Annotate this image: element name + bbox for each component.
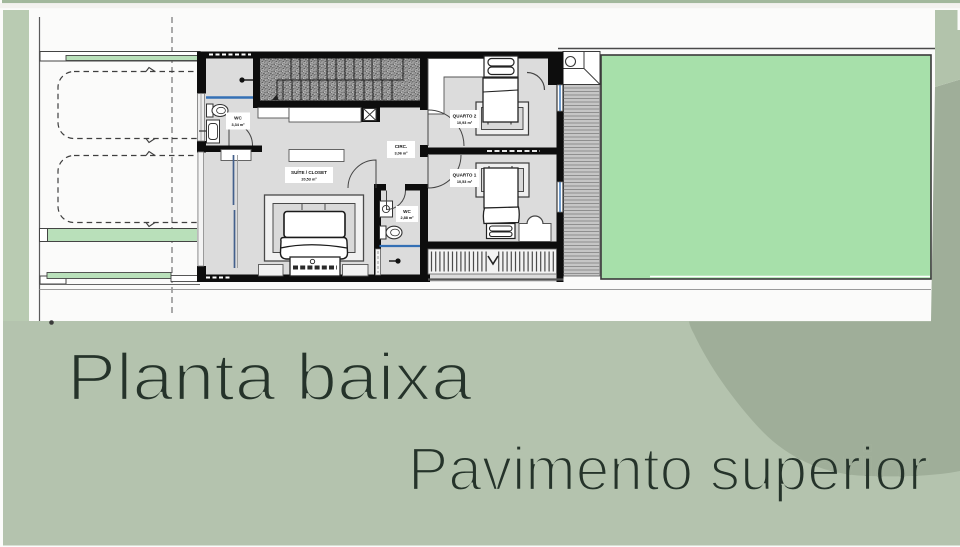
svg-text:10,53 m²: 10,53 m² [457, 180, 473, 184]
svg-text:2,88 m²: 2,88 m² [400, 216, 414, 220]
svg-text:WC: WC [234, 116, 242, 121]
svg-text:QUARTO 2: QUARTO 2 [453, 114, 477, 119]
svg-text:3,34 m²: 3,34 m² [231, 123, 245, 127]
svg-text:QUARTO 1: QUARTO 1 [453, 173, 477, 178]
svg-text:Planta baixa: Planta baixa [67, 340, 473, 415]
svg-text:3,06 m²: 3,06 m² [394, 152, 408, 156]
svg-text:WC: WC [403, 209, 411, 214]
svg-text:20,53 m²: 20,53 m² [301, 178, 317, 182]
svg-text:10,93 m²: 10,93 m² [457, 121, 473, 125]
svg-text:SUÍTE / CLOSET: SUÍTE / CLOSET [291, 168, 327, 175]
svg-text:CIRC.: CIRC. [395, 144, 408, 149]
